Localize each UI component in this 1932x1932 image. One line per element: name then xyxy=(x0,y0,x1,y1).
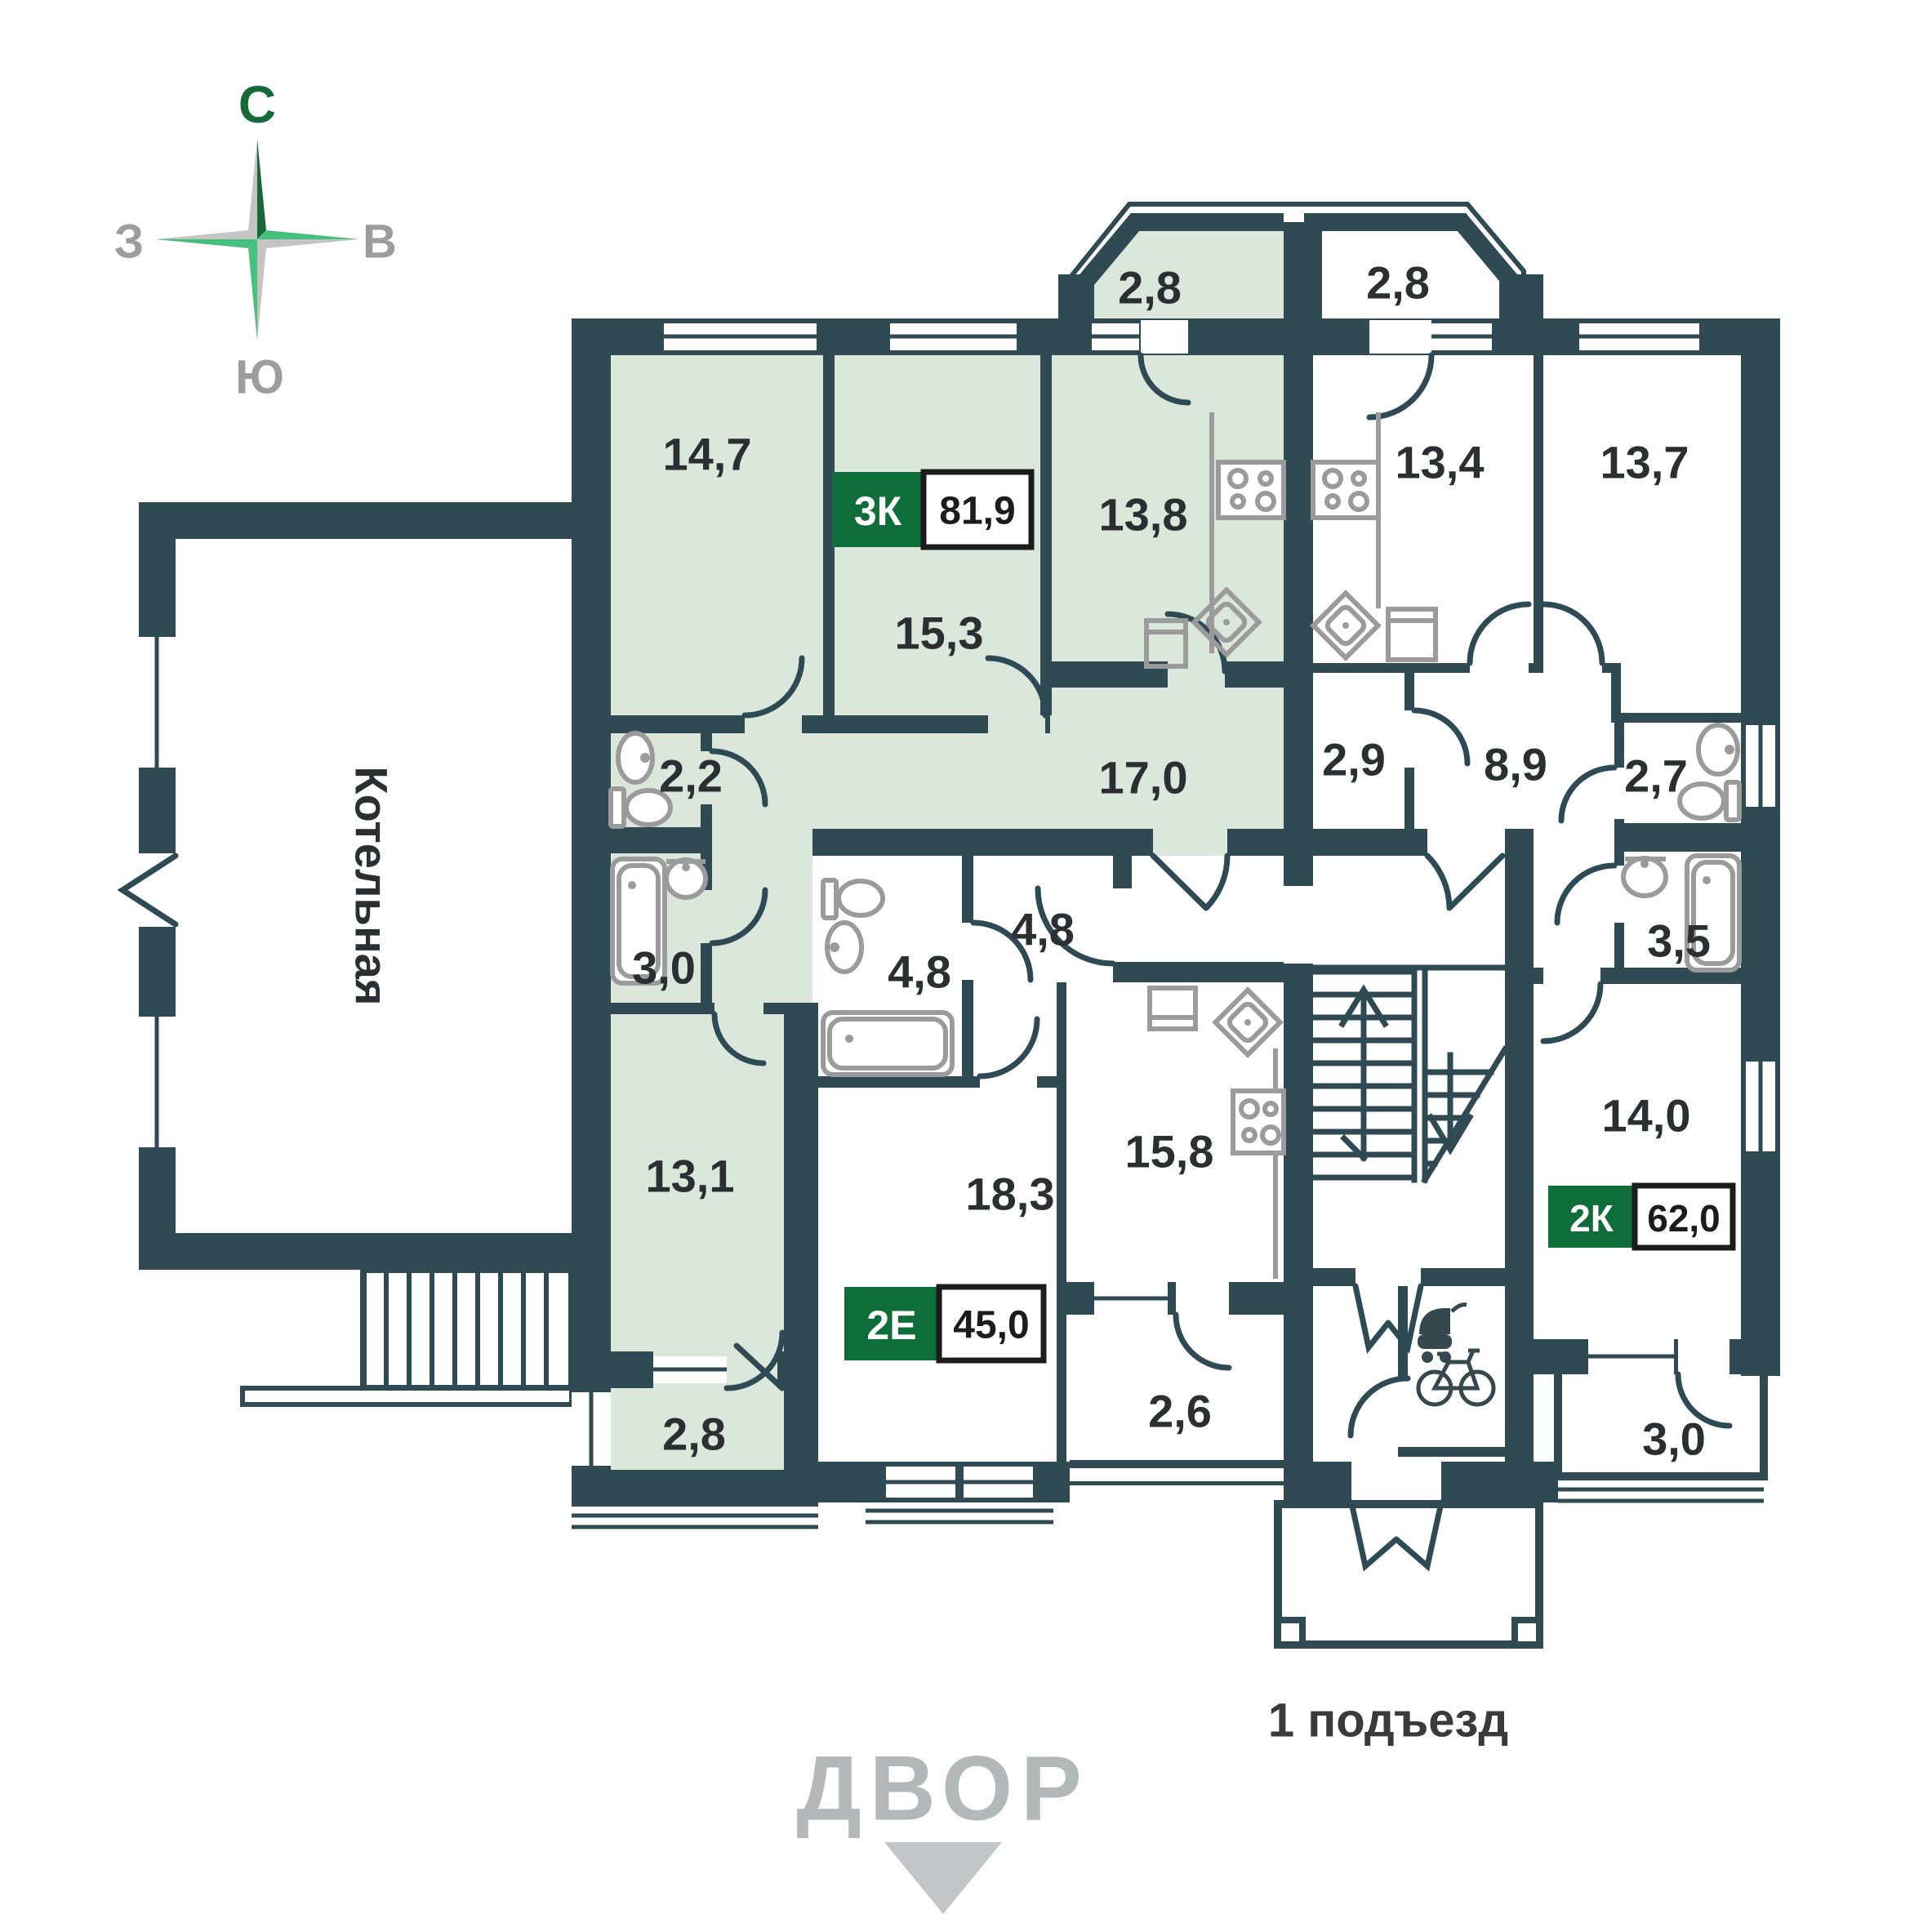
sink-icon xyxy=(1623,858,1666,896)
room-label: 13,7 xyxy=(1600,437,1689,488)
compass-south-label: Ю xyxy=(235,351,284,404)
room-label: 3,5 xyxy=(1647,915,1711,967)
room-label: 17,0 xyxy=(1099,752,1188,804)
badge-area: 62,0 xyxy=(1647,1197,1721,1240)
floor-plan: Котельная xyxy=(0,0,1932,1932)
sink-icon xyxy=(827,923,861,972)
room-label: 15,3 xyxy=(895,608,984,659)
room-label: 2,8 xyxy=(1118,262,1182,314)
badge-code: 2Е xyxy=(866,1302,916,1348)
stove-icon xyxy=(1313,462,1378,518)
badge-apartment-3k[interactable]: 3К 81,9 xyxy=(832,472,1031,547)
toilet-icon xyxy=(1680,782,1739,820)
compass-north-label: С xyxy=(238,75,276,134)
toilet-icon xyxy=(823,880,883,918)
room-label: 14,7 xyxy=(663,429,752,480)
badge-apartment-2k[interactable]: 2К 62,0 xyxy=(1548,1186,1733,1248)
compass-east-label: В xyxy=(363,216,397,269)
stove-icon xyxy=(1233,1091,1284,1153)
badge-code: 2К xyxy=(1569,1197,1614,1240)
sink-icon xyxy=(666,860,706,897)
room-label: 2,6 xyxy=(1148,1386,1212,1437)
page-background xyxy=(0,0,1932,1932)
room-label: 3,0 xyxy=(632,942,696,994)
room-label: 4,8 xyxy=(888,946,951,998)
room-label: 14,0 xyxy=(1602,1090,1691,1142)
badge-code: 3К xyxy=(854,488,902,534)
room-label: 2,8 xyxy=(1366,257,1430,309)
bathtub-icon xyxy=(823,1013,952,1075)
badge-area: 45,0 xyxy=(953,1304,1029,1347)
badge-apartment-2e[interactable]: 2Е 45,0 xyxy=(844,1287,1044,1360)
porch-column-right xyxy=(1515,1620,1539,1645)
courtyard-label: ДВОР xyxy=(796,1738,1090,1840)
room-label: 13,1 xyxy=(646,1151,735,1202)
room-label: 2,7 xyxy=(1624,750,1688,802)
room-label: 13,8 xyxy=(1099,489,1188,541)
badge-area: 81,9 xyxy=(939,490,1015,533)
room-label: 2,2 xyxy=(659,750,723,802)
room-label: 2,9 xyxy=(1322,734,1386,786)
compass-west-label: З xyxy=(114,216,144,269)
boiler-room-label: Котельная xyxy=(346,766,398,1005)
room-label: 4,8 xyxy=(1011,904,1075,955)
entrance-label: 1 подъезд xyxy=(1268,1694,1508,1747)
porch-column-left xyxy=(1278,1620,1302,1645)
room-label: 3,0 xyxy=(1642,1413,1706,1465)
room-label: 2,8 xyxy=(662,1409,726,1460)
room-label: 13,4 xyxy=(1396,437,1485,488)
room-label: 15,8 xyxy=(1125,1126,1214,1177)
stove-icon xyxy=(1218,462,1284,518)
room-label: 8,9 xyxy=(1484,739,1547,790)
room-label: 18,3 xyxy=(966,1169,1055,1220)
sink-icon xyxy=(618,733,652,782)
sink-icon xyxy=(1698,725,1738,774)
